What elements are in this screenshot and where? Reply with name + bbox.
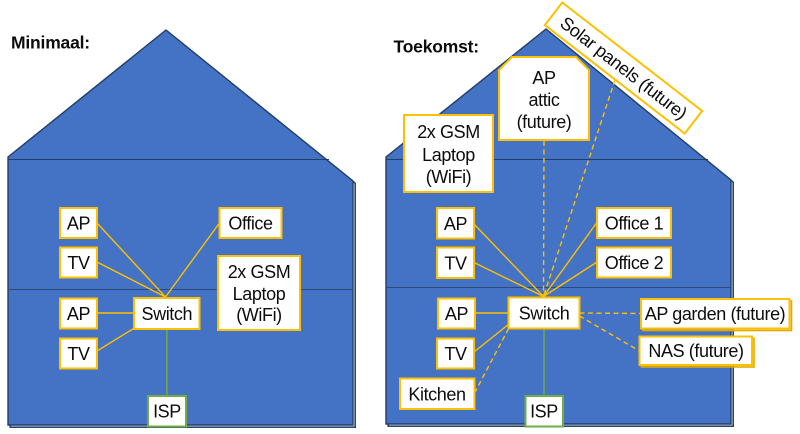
svg-text:attic: attic: [528, 90, 559, 110]
svg-text:TV: TV: [67, 344, 90, 364]
svg-text:AP: AP: [532, 68, 556, 88]
svg-text:(WiFi): (WiFi): [236, 305, 282, 325]
svg-text:ISP: ISP: [530, 402, 558, 422]
svg-text:(future): (future): [517, 112, 572, 132]
svg-text:AP garden (future): AP garden (future): [645, 304, 786, 324]
svg-text:NAS (future): NAS (future): [648, 341, 743, 361]
svg-text:TV: TV: [444, 344, 467, 364]
svg-text:Laptop: Laptop: [233, 284, 286, 304]
svg-text:AP: AP: [444, 214, 468, 234]
svg-text:TV: TV: [444, 254, 467, 274]
svg-text:Switch: Switch: [141, 304, 192, 324]
svg-text:Office: Office: [228, 214, 273, 234]
svg-text:Laptop: Laptop: [422, 145, 475, 165]
svg-text:Kitchen: Kitchen: [408, 385, 465, 405]
svg-text:Office 2: Office 2: [605, 253, 664, 273]
svg-text:TV: TV: [67, 253, 90, 273]
svg-text:Toekomst:: Toekomst:: [394, 37, 479, 57]
svg-text:ISP: ISP: [153, 402, 181, 422]
svg-text:AP: AP: [445, 304, 469, 324]
svg-text:2x GSM: 2x GSM: [417, 122, 480, 142]
svg-text:AP: AP: [67, 214, 91, 234]
svg-text:AP: AP: [67, 304, 91, 324]
svg-text:2x GSM: 2x GSM: [228, 262, 291, 282]
svg-text:(WiFi): (WiFi): [426, 167, 472, 187]
svg-text:Office 1: Office 1: [605, 214, 664, 234]
svg-text:Minimaal:: Minimaal:: [11, 33, 90, 53]
svg-text:Switch: Switch: [519, 304, 570, 324]
